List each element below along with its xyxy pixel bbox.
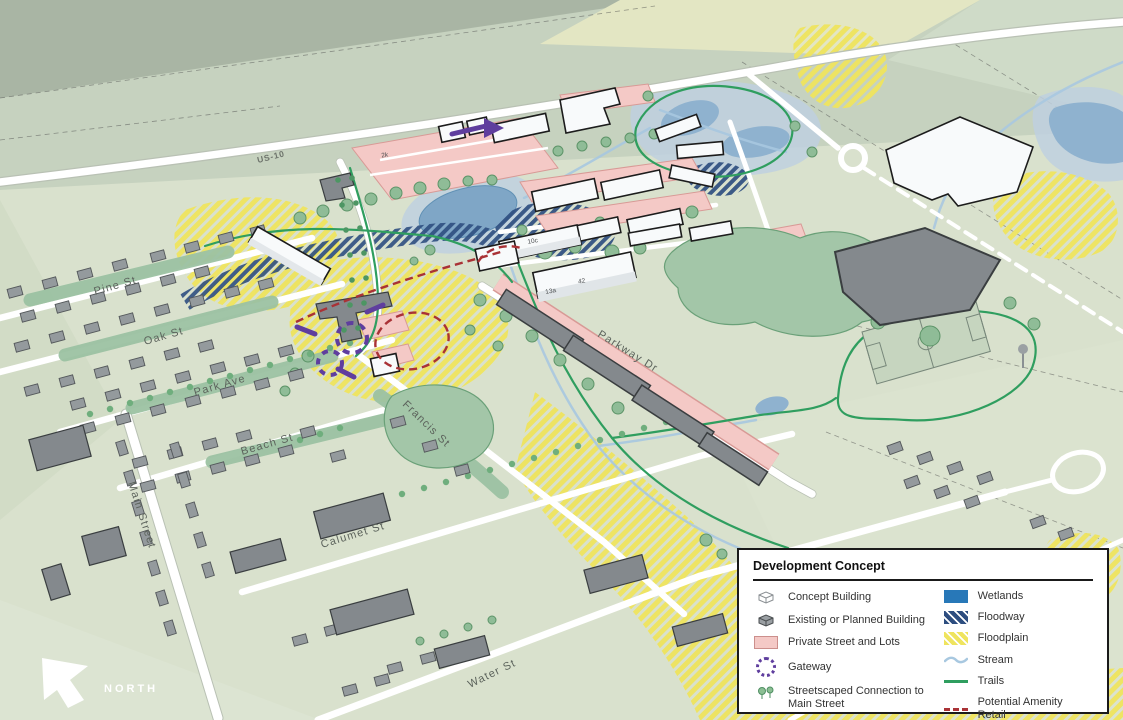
tree <box>517 225 527 235</box>
streetscape-tree-dot <box>357 225 363 231</box>
tree <box>463 176 473 186</box>
tree <box>365 193 377 205</box>
stream-icon <box>943 655 969 665</box>
legend-item-label: Streetscaped Connection to Main Street <box>788 685 937 711</box>
tree <box>280 386 290 396</box>
floodway-swatch <box>944 611 968 624</box>
street-tree <box>127 400 133 406</box>
street-tree <box>307 351 313 357</box>
legend-item-label: Gateway <box>788 661 831 674</box>
streetscape-tree-dot <box>347 302 353 308</box>
legend-item-label: Wetlands <box>978 590 1024 603</box>
tree <box>390 187 402 199</box>
tree <box>920 326 940 346</box>
tree <box>1028 318 1040 330</box>
streetscape-trees-icon <box>753 685 779 701</box>
streetscape-tree-dot <box>361 250 367 256</box>
floodplain-swatch <box>944 632 968 645</box>
street-tree <box>619 431 625 437</box>
legend-item-existing-building: Existing or Planned Building <box>753 613 937 628</box>
tree <box>1004 297 1016 309</box>
streetscape-tree-dot <box>339 202 345 208</box>
street-tree <box>399 491 405 497</box>
legend-item-label: Stream <box>978 654 1013 667</box>
street-tree <box>107 406 113 412</box>
tree <box>717 549 727 559</box>
legend-title: Development Concept <box>753 559 1093 573</box>
tree <box>526 330 538 342</box>
street-tree <box>597 437 603 443</box>
streetscape-tree-dot <box>353 200 359 206</box>
legend-item-label: Potential Amenity Retail <box>978 696 1093 720</box>
street-tree <box>509 461 515 467</box>
street-tree <box>267 362 273 368</box>
legend-item-wetlands: Wetlands <box>943 590 1093 603</box>
tree <box>410 257 418 265</box>
tree <box>464 623 472 631</box>
tree <box>440 630 448 638</box>
street-tree <box>487 467 493 473</box>
legend: Development Concept Concept Building Exi… <box>737 548 1109 714</box>
streetscape-tree-dot <box>349 277 355 283</box>
streetscape-tree-dot <box>349 175 355 181</box>
tree <box>465 325 475 335</box>
street-tree <box>147 395 153 401</box>
tree <box>317 205 329 217</box>
streetscape-tree-dot <box>347 252 353 258</box>
amenity-retail-icon <box>944 708 968 711</box>
tree <box>700 534 712 546</box>
streetscape-tree-dot <box>363 275 369 281</box>
tree <box>577 141 587 151</box>
tree <box>294 212 306 224</box>
tree <box>601 137 611 147</box>
legend-item-private-street: Private Street and Lots <box>753 636 937 649</box>
tree <box>790 121 800 131</box>
gateway-icon <box>756 657 776 677</box>
street-tree <box>531 455 537 461</box>
street-tree <box>337 425 343 431</box>
street-tree <box>247 367 253 373</box>
street-tree <box>641 425 647 431</box>
street-tree <box>327 345 333 351</box>
street-tree <box>553 449 559 455</box>
private-street-swatch <box>754 636 778 649</box>
legend-item-stream: Stream <box>943 654 1093 667</box>
legend-item-label: Private Street and Lots <box>788 636 900 649</box>
legend-item-trails: Trails <box>943 675 1093 688</box>
tree <box>425 245 435 255</box>
street-tree <box>421 485 427 491</box>
legend-item-label: Trails <box>978 675 1004 688</box>
existing-building-icon <box>753 613 779 628</box>
streetscape-tree-dot <box>343 227 349 233</box>
wetlands-swatch <box>944 590 968 603</box>
legend-item-label: Floodplain <box>978 632 1029 645</box>
north-label: NORTH <box>104 683 158 695</box>
tree <box>416 637 424 645</box>
legend-item-amenity-retail: Potential Amenity Retail <box>943 696 1093 720</box>
legend-item-concept-building: Concept Building <box>753 590 937 605</box>
street-tree <box>443 479 449 485</box>
street-tree <box>87 411 93 417</box>
streetscape-tree-dot <box>335 177 341 183</box>
trails-icon <box>944 680 968 683</box>
streetscape-tree-dot <box>341 327 347 333</box>
legend-item-floodplain: Floodplain <box>943 632 1093 645</box>
legend-item-label: Existing or Planned Building <box>788 614 925 627</box>
tree <box>554 354 566 366</box>
tree <box>488 616 496 624</box>
tree <box>807 147 817 157</box>
tree <box>686 206 698 218</box>
development-concept-map: US-10 Pine St Oak St Park Ave Beach St M… <box>0 0 1123 720</box>
street-tree <box>167 389 173 395</box>
streetscape-tree-dot <box>361 300 367 306</box>
tree <box>414 182 426 194</box>
street-tree <box>317 431 323 437</box>
legend-item-label: Floodway <box>978 611 1025 624</box>
tree <box>487 175 497 185</box>
tree <box>612 402 624 414</box>
tree <box>625 133 635 143</box>
street-tree <box>287 356 293 362</box>
tree <box>582 378 594 390</box>
street-tree <box>575 443 581 449</box>
legend-item-floodway: Floodway <box>943 611 1093 624</box>
tree <box>493 341 503 351</box>
legend-item-streetscaped-connection: Streetscaped Connection to Main Street <box>753 685 937 711</box>
legend-item-label: Concept Building <box>788 591 871 604</box>
tree <box>438 178 450 190</box>
legend-item-gateway: Gateway <box>753 657 937 677</box>
tree <box>643 91 653 101</box>
tree <box>553 146 563 156</box>
concept-building-icon <box>753 590 779 605</box>
tree <box>474 294 486 306</box>
legend-rule <box>753 579 1093 581</box>
streetscape-tree-dot <box>355 325 361 331</box>
